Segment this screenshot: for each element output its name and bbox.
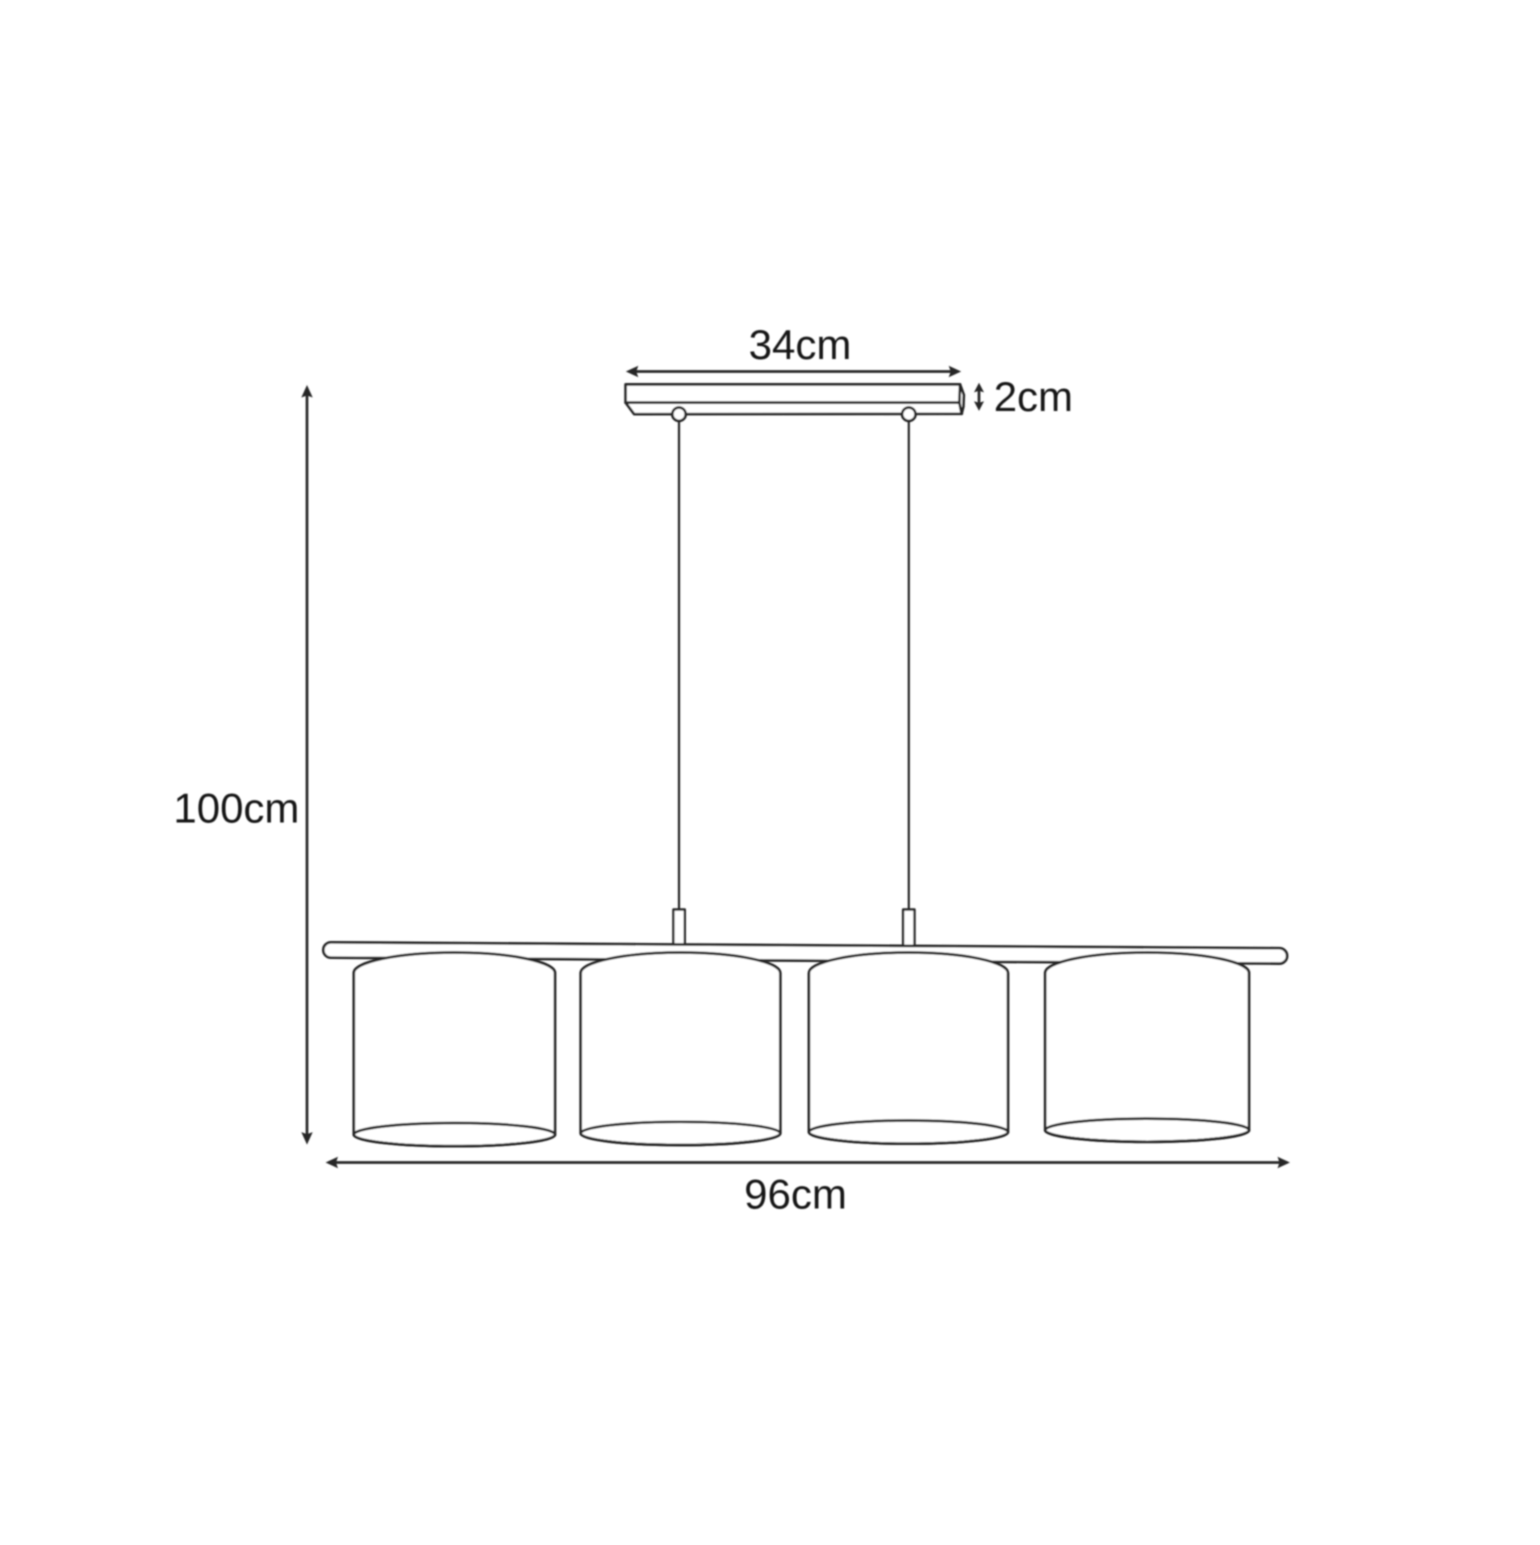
svg-text:100cm: 100cm [173,785,299,832]
svg-text:96cm: 96cm [744,1171,847,1218]
svg-text:2cm: 2cm [994,373,1073,420]
svg-text:34cm: 34cm [749,321,852,368]
